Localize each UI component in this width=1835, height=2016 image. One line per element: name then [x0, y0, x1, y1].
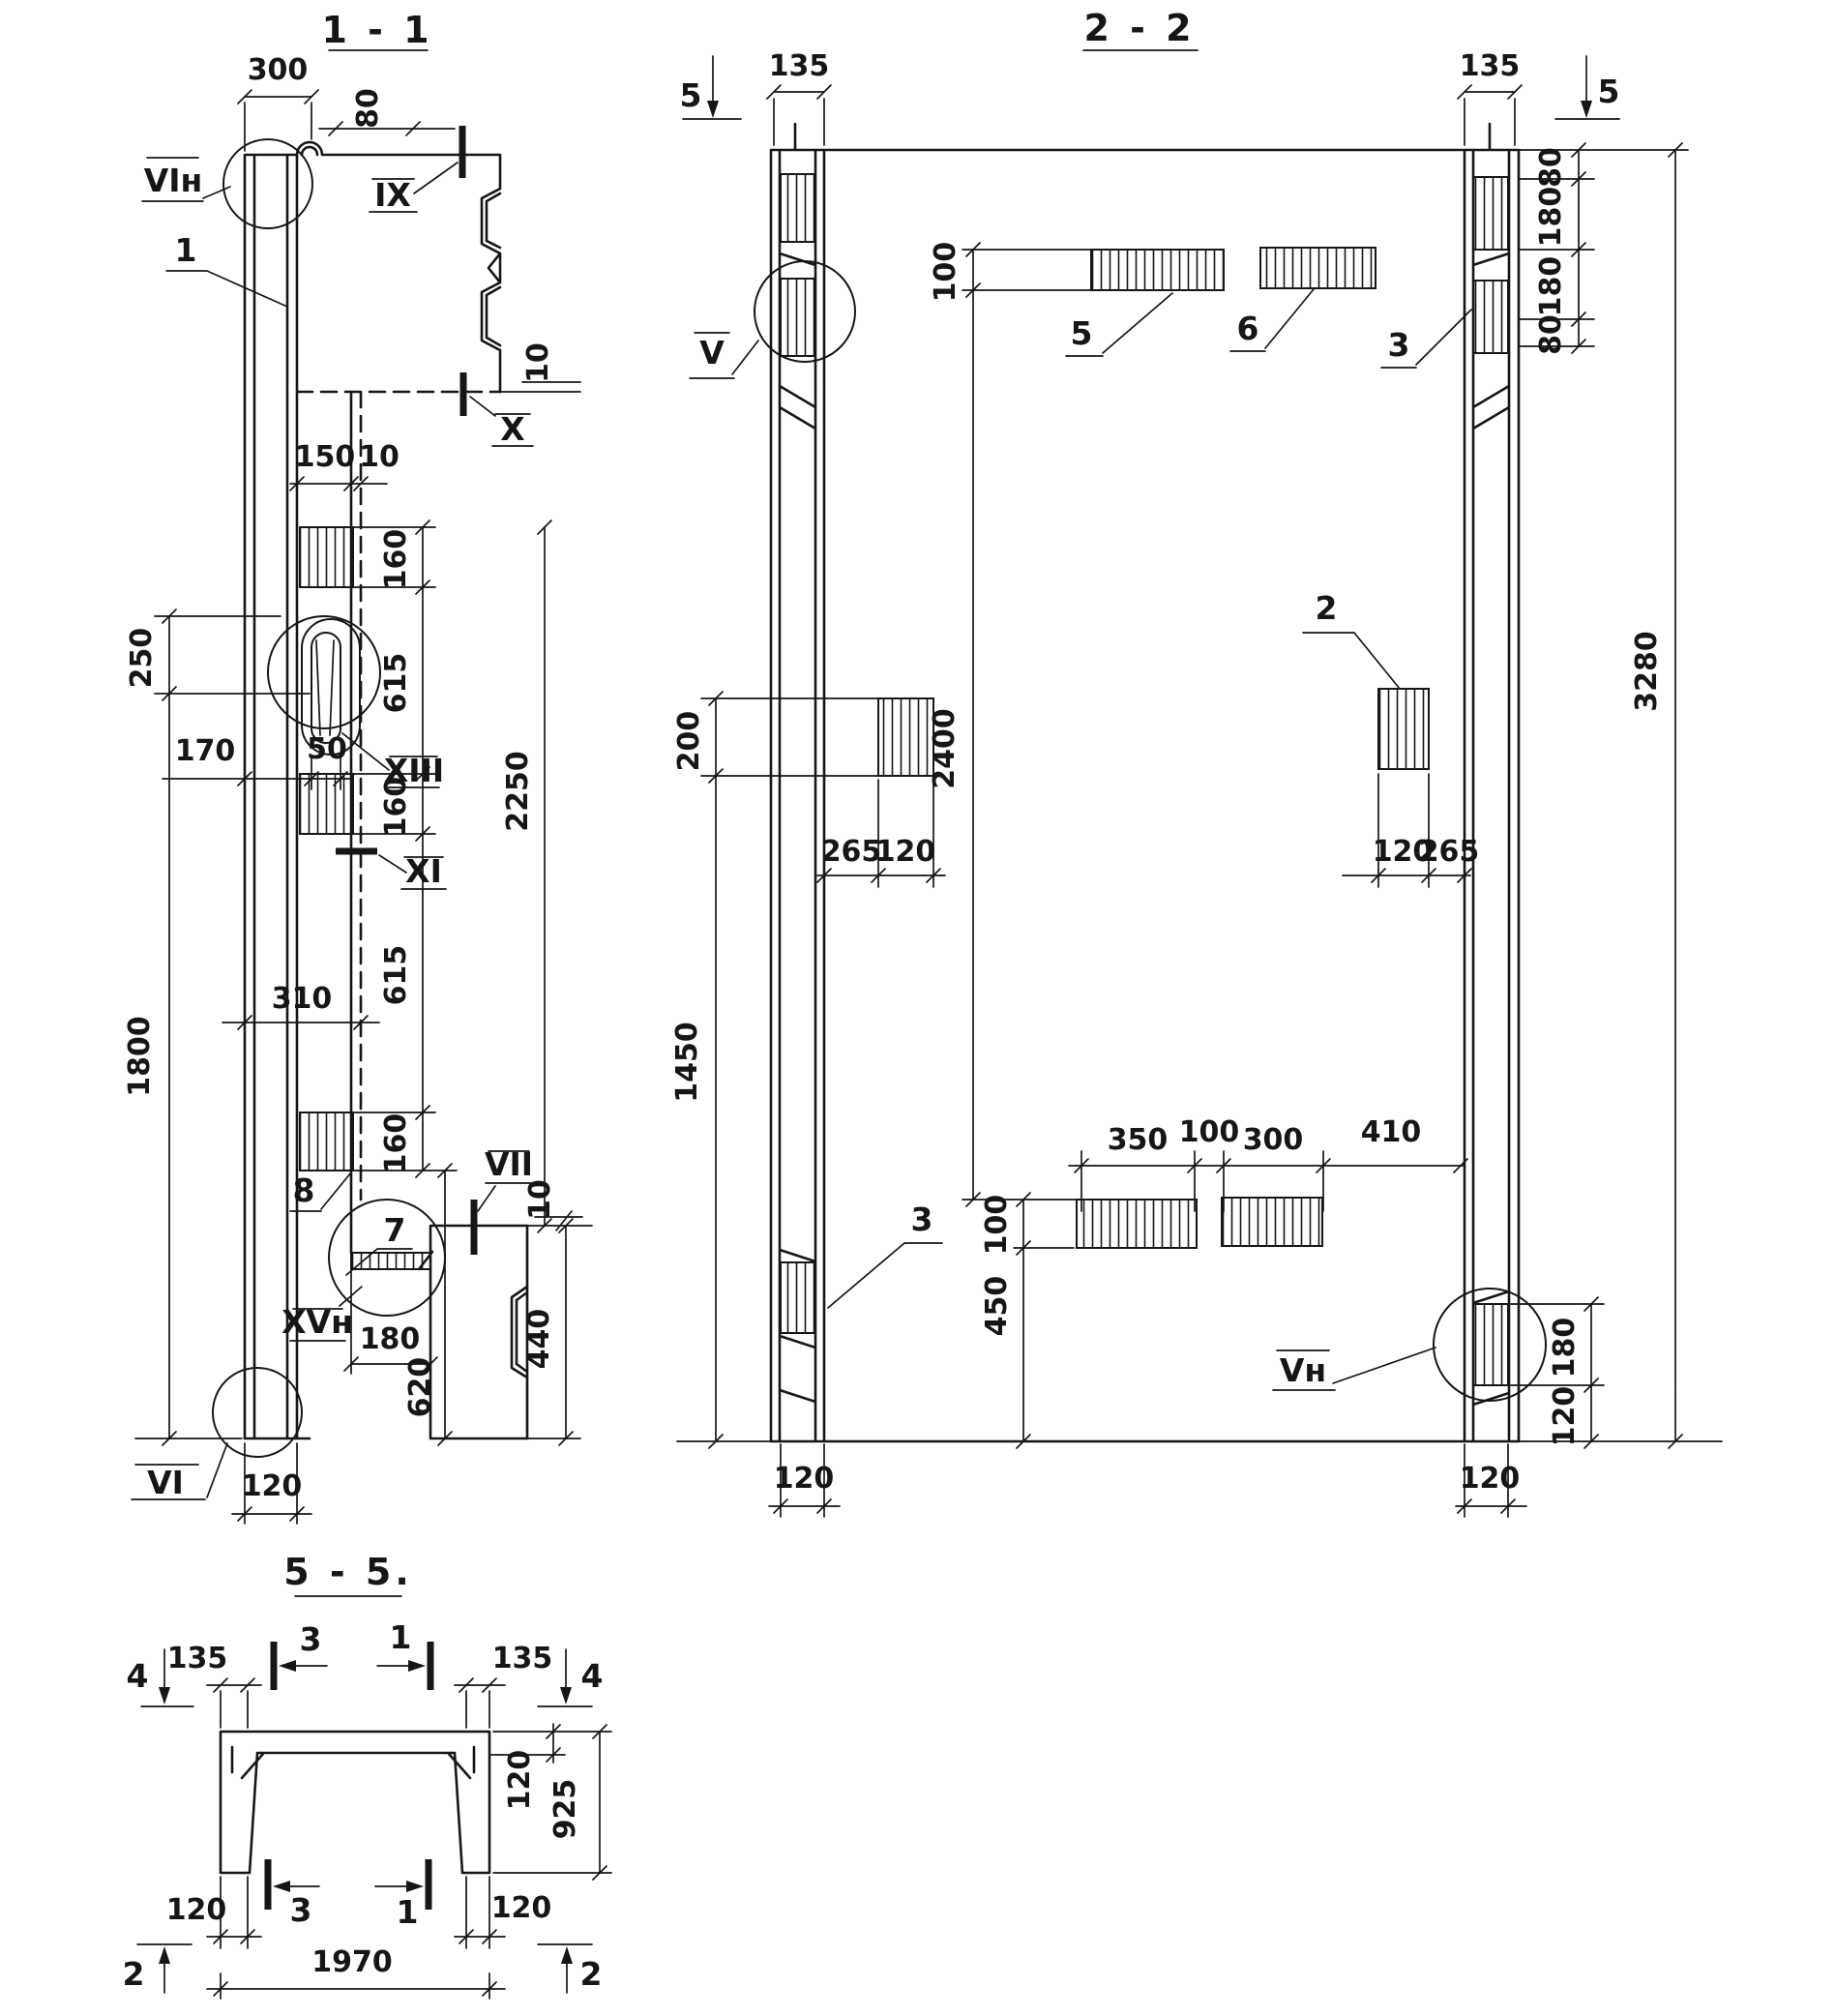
dim-120: 120 — [166, 1893, 227, 1927]
dim-120: 120 — [1460, 1462, 1521, 1496]
part-label-1: 1 — [175, 231, 197, 269]
dim-80: 80 — [351, 88, 385, 129]
dim-120: 120 — [503, 1750, 537, 1811]
section-1-1-texts: 1 - 1 300 80 IX 1 VIн X 10 150 10 250 17… — [123, 9, 557, 1503]
dim-120: 120 — [1548, 1386, 1582, 1447]
part-label-6: 6 — [1237, 310, 1259, 347]
dim-180: 180 — [1548, 1318, 1582, 1379]
dim-120: 120 — [774, 1462, 835, 1496]
dim-135: 135 — [492, 1642, 553, 1675]
flange-plate — [781, 174, 815, 242]
dim-80: 80 — [1534, 314, 1568, 355]
mark-Vn: Vн — [1280, 1351, 1326, 1389]
flange-plate — [1473, 281, 1508, 353]
dim-925: 925 — [548, 1779, 582, 1840]
section-title-2-2: 2 - 2 — [1083, 7, 1195, 49]
dim-120: 120 — [875, 835, 936, 869]
section-2-2-texts: 2 - 2 5 135 135 5 80 180 180 80 3280 100… — [670, 7, 1664, 1496]
cut-mark-5-left: 5 — [680, 76, 702, 114]
cut-mark-1-top: 1 — [390, 1618, 412, 1656]
dim-100: 100 — [980, 1195, 1014, 1256]
mark-XVn: XVн — [281, 1303, 353, 1341]
part-label-5: 5 — [1071, 314, 1093, 352]
dim-100: 100 — [1179, 1115, 1240, 1149]
part-label-7: 7 — [384, 1211, 406, 1249]
cut-mark-3-bottom: 3 — [290, 1891, 312, 1929]
dim-50: 50 — [307, 732, 347, 766]
dim-120: 120 — [242, 1469, 303, 1503]
dim-620: 620 — [403, 1357, 437, 1418]
dim-160: 160 — [379, 529, 413, 590]
dim-150: 150 — [295, 440, 356, 474]
dim-265: 265 — [821, 835, 882, 869]
cut-mark-4-left: 4 — [127, 1657, 149, 1695]
dim-10: 10 — [523, 1179, 557, 1220]
dim-2250: 2250 — [501, 751, 535, 832]
dim-135: 135 — [167, 1642, 228, 1675]
technical-drawing: 1 - 1 300 80 IX 1 VIн X 10 150 10 250 17… — [0, 0, 1835, 2016]
dim-135: 135 — [1460, 49, 1521, 83]
dim-350: 350 — [1108, 1123, 1169, 1157]
section-title-1-1: 1 - 1 — [321, 9, 432, 51]
dim-450: 450 — [980, 1276, 1014, 1337]
cut-mark-5-right: 5 — [1598, 73, 1620, 110]
dim-100: 100 — [929, 242, 962, 303]
flange-plate — [781, 279, 815, 356]
section-plane-bars — [268, 1642, 430, 1910]
dim-440: 440 — [522, 1309, 556, 1370]
dim-80: 80 — [1534, 147, 1568, 188]
web-plate — [1222, 1198, 1322, 1246]
dim-135: 135 — [769, 49, 830, 83]
dim-3280: 3280 — [1630, 631, 1664, 712]
dim-160: 160 — [379, 777, 413, 838]
cut-mark-2-left: 2 — [123, 1955, 145, 1993]
dim-300: 300 — [1243, 1123, 1304, 1157]
web-plate — [1077, 1200, 1197, 1248]
dim-410: 410 — [1361, 1115, 1422, 1149]
section-title-5-5: 5 - 5. — [283, 1551, 413, 1593]
dim-180: 180 — [1534, 256, 1568, 317]
mark-IX: IX — [374, 176, 411, 214]
flange-plate — [1473, 177, 1508, 250]
dim-1450: 1450 — [670, 1022, 704, 1103]
cut-mark-3-top: 3 — [300, 1620, 322, 1658]
web-plate-2 — [1378, 689, 1429, 769]
dim-2400: 2400 — [928, 708, 962, 789]
dim-200: 200 — [672, 711, 706, 772]
flange-plate — [1473, 1304, 1508, 1385]
dim-10: 10 — [521, 342, 555, 383]
dim-120: 120 — [491, 1891, 552, 1925]
dim-10: 10 — [359, 440, 400, 474]
flange-plate — [781, 1262, 815, 1333]
cut-mark-1-bottom: 1 — [397, 1893, 419, 1931]
cut-mark-4-right: 4 — [581, 1657, 604, 1695]
dim-250: 250 — [125, 628, 159, 689]
dim-180: 180 — [1534, 187, 1568, 248]
mark-VIn: VIн — [144, 162, 203, 199]
web-plate-5 — [1091, 250, 1224, 290]
section-5-5-texts: 5 - 5. 4 135 3 1 135 4 120 925 120 3 1 1… — [123, 1551, 604, 1993]
part-label-2: 2 — [1316, 589, 1338, 627]
dim-265: 265 — [1419, 835, 1480, 869]
cut-mark-2-right: 2 — [580, 1955, 603, 1993]
mark-V: V — [699, 334, 725, 371]
part-label-8: 8 — [293, 1171, 315, 1209]
dim-615: 615 — [379, 945, 413, 1006]
mark-VII: VII — [485, 1145, 533, 1183]
detail-circle-VIn — [223, 139, 312, 228]
web-plate — [878, 698, 933, 776]
anchor-plate — [300, 1112, 353, 1171]
anchor-plate — [300, 527, 353, 587]
mark-XI: XI — [405, 852, 442, 890]
dim-160: 160 — [379, 1113, 413, 1174]
part-label-3: 3 — [911, 1201, 933, 1238]
mark-X: X — [500, 410, 524, 448]
dim-1970: 1970 — [311, 1945, 393, 1979]
dim-1800: 1800 — [123, 1016, 157, 1097]
dim-170: 170 — [175, 734, 236, 768]
mark-VI: VI — [147, 1464, 184, 1501]
dim-180: 180 — [360, 1322, 421, 1356]
drawing-sheet: 1 - 1 300 80 IX 1 VIн X 10 150 10 250 17… — [0, 0, 1835, 2016]
part-label-3: 3 — [1388, 326, 1410, 364]
view-direction-arrows — [707, 101, 1592, 118]
web-plate-6 — [1260, 248, 1376, 288]
dim-310: 310 — [272, 982, 333, 1016]
dim-300: 300 — [248, 53, 309, 87]
dim-615: 615 — [379, 653, 413, 714]
